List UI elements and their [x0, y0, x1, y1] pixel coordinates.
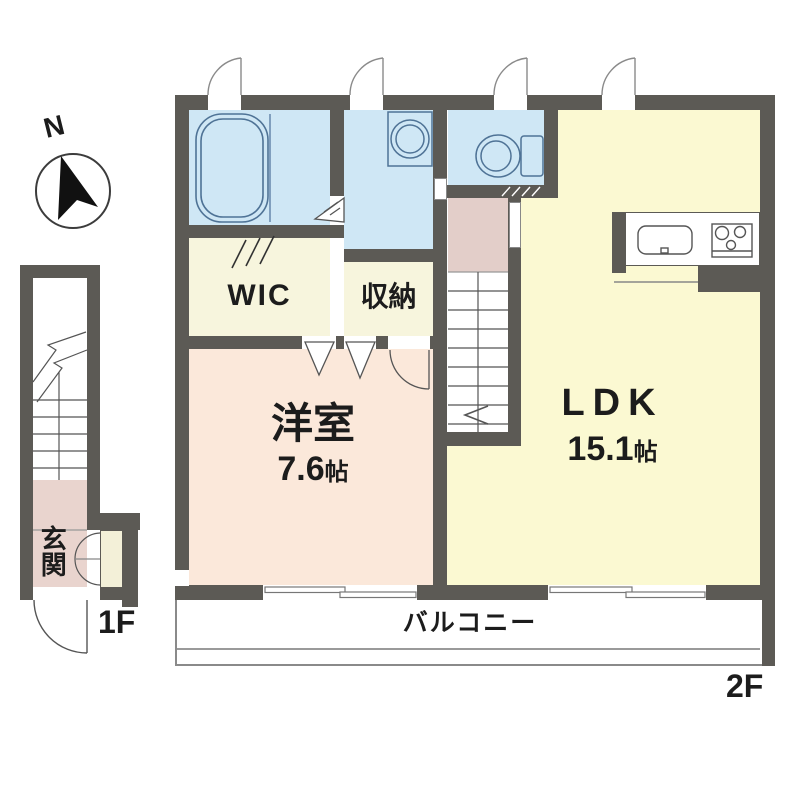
room-label-storage: 収納 [344, 282, 433, 311]
entrance-door [34, 600, 87, 653]
ldk-size: 15.1帖 [500, 432, 725, 468]
wall-segment [20, 265, 33, 600]
room-label-western: 洋室 7.6帖 [208, 402, 418, 488]
door-hall-washroom [434, 178, 447, 200]
room-label-ldk: LDK 15.1帖 [500, 384, 725, 468]
kitchen-stub-wall [612, 212, 626, 273]
kitchen-counter [614, 212, 760, 266]
western-room-name: 洋室 [208, 402, 418, 446]
compass-circle [35, 153, 111, 229]
wall-western-top [430, 336, 447, 349]
wall-right [760, 95, 775, 666]
wall-western-top [175, 336, 302, 349]
room-label-entrance: 玄関 [38, 518, 65, 584]
window-top-bath [208, 95, 241, 110]
door-gap-bath [330, 196, 344, 225]
hall-2f-floor [448, 198, 508, 272]
shoe-cabinet [100, 530, 124, 589]
duct-wall [698, 266, 760, 292]
washroom-floor [344, 110, 433, 249]
window-top-washroom [350, 95, 383, 110]
compass-north-label: N [41, 110, 68, 143]
floor-plan: N [0, 0, 800, 800]
window-top-ldk [602, 95, 635, 110]
balcony-rail-line [177, 648, 760, 650]
ldk-name: LDK [500, 384, 725, 424]
room-label-balcony: バルコニー [350, 610, 590, 636]
ldk-floor [558, 110, 760, 585]
window-left-western [175, 570, 189, 586]
casement-window-icon [208, 58, 635, 95]
room-label-wic: WIC [189, 280, 330, 312]
window-ldk-balcony [548, 585, 706, 600]
floor-label-2f: 2F [726, 670, 763, 704]
wall-western-top [336, 336, 344, 349]
wall-segment [100, 587, 138, 600]
bathroom-floor [189, 110, 330, 225]
wall-bath-bottom [175, 225, 344, 238]
wall-bath-washroom [330, 110, 344, 196]
floor-label-1f: 1F [98, 606, 135, 640]
wall-toilet-right [544, 95, 558, 198]
stairs-2f-floor [448, 272, 508, 432]
shoe-cabinet-door-area [87, 530, 100, 587]
wall-washroom-bottom [344, 249, 447, 262]
door-hall-ldk [509, 202, 521, 248]
window-top-toilet [494, 95, 527, 110]
stairs-1f-floor [33, 278, 87, 480]
wall-toilet-bottom [433, 185, 545, 198]
wall-top [175, 95, 775, 110]
toilet-floor [448, 110, 544, 185]
window-western-balcony [263, 585, 417, 600]
wall-western-top [376, 336, 388, 349]
western-room-size: 7.6帖 [208, 452, 418, 488]
wall-segment [87, 265, 100, 530]
